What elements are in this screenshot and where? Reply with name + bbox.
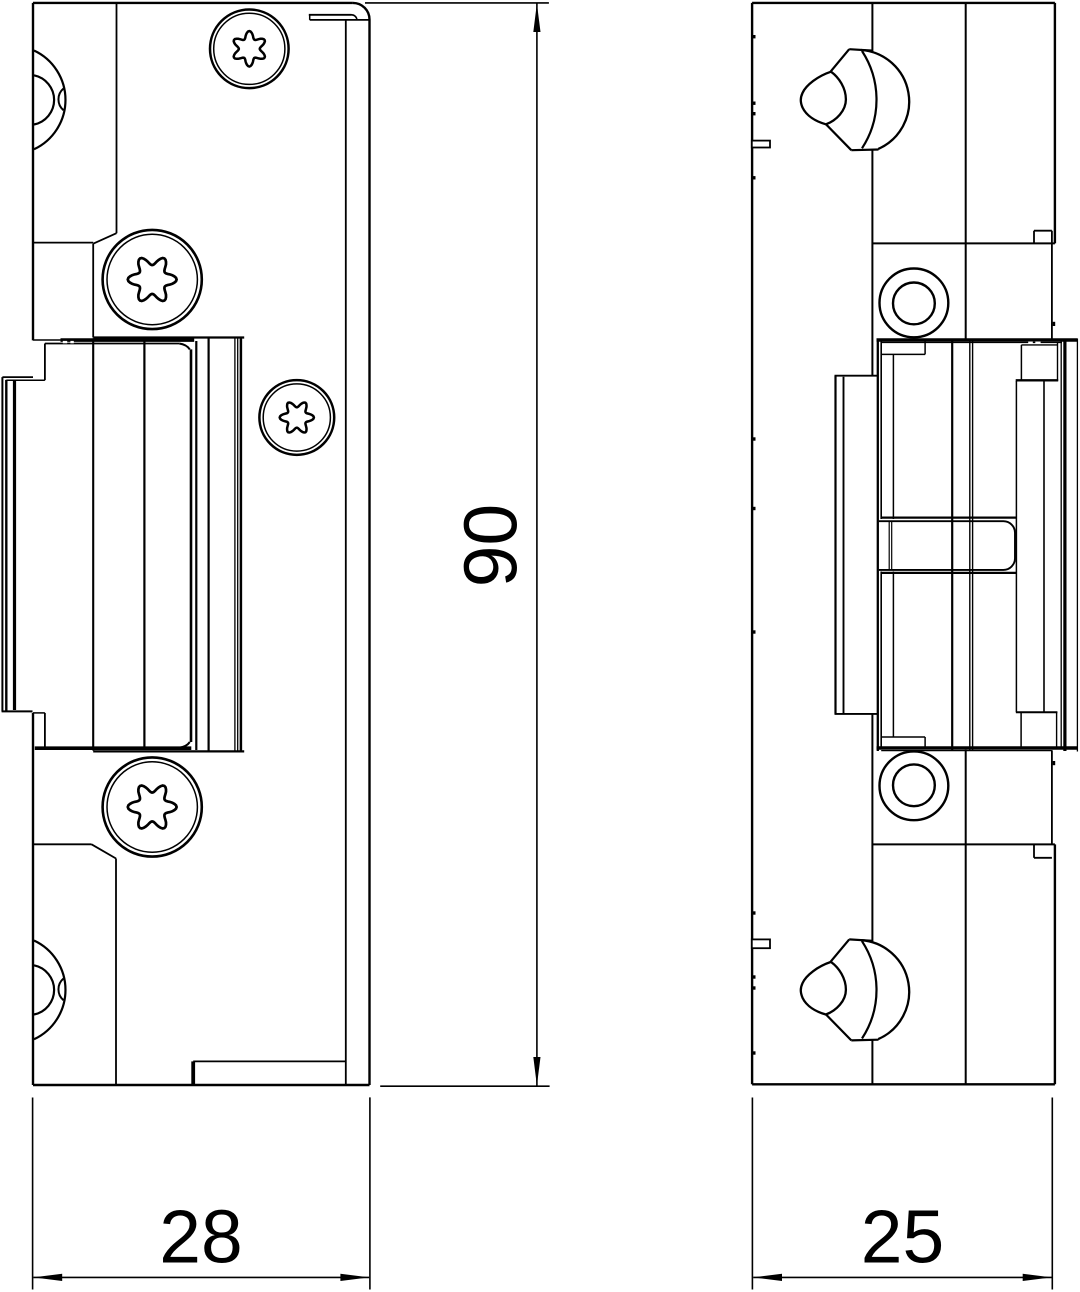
svg-text:90: 90: [449, 504, 533, 587]
svg-text:25: 25: [861, 1195, 944, 1279]
svg-text:28: 28: [159, 1195, 242, 1279]
